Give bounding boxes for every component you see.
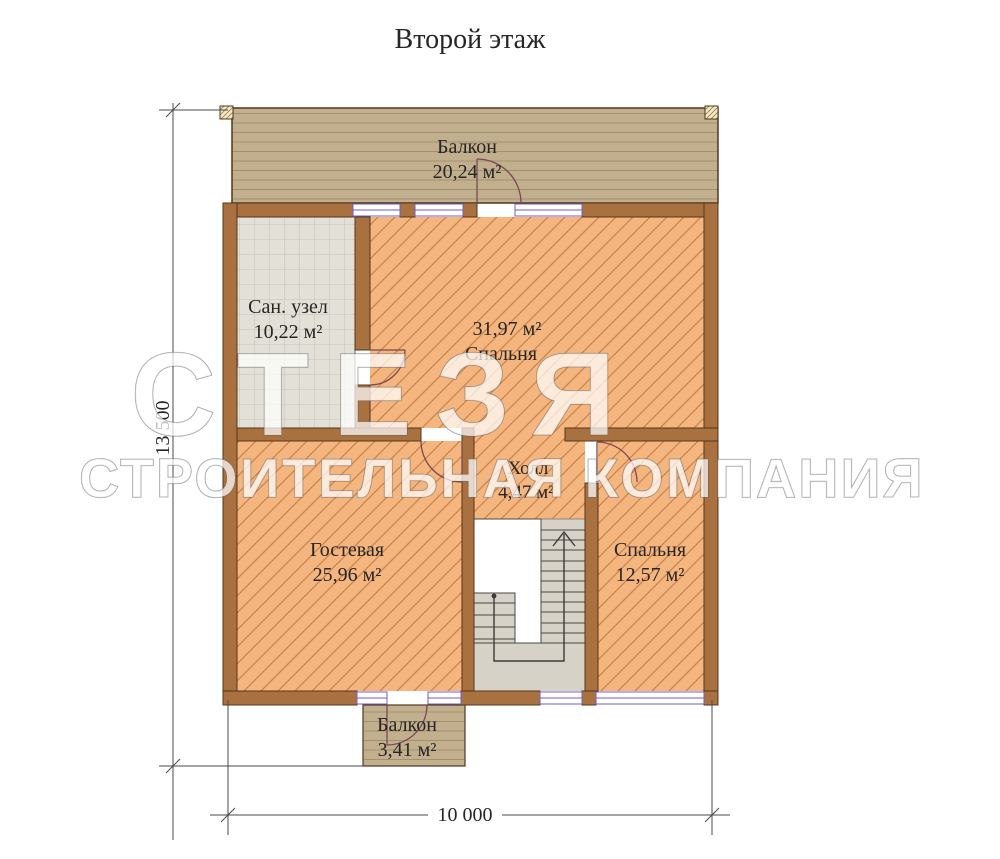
dim-width-label: 10 000 — [438, 804, 493, 826]
window-bottom-1 — [357, 692, 387, 704]
label-guest-area: 25,96 м² — [313, 564, 382, 586]
watermark-line1: СТЕЗЯ — [131, 329, 640, 461]
label-balcony-top-name: Балкон — [437, 136, 497, 158]
balcony-post-left — [220, 106, 233, 119]
watermark: СТЕЗЯ СТРОИТЕЛЬНАЯ КОМПАНИЯ — [79, 329, 925, 509]
label-san-uzel-name: Сан. узел — [248, 296, 328, 318]
watermark-line2: СТРОИТЕЛЬНАЯ КОМПАНИЯ — [79, 447, 925, 509]
label-balcony-bottom-area: 3,41 м² — [378, 739, 437, 761]
page-title: Второй этаж — [395, 24, 547, 55]
window-top-3 — [515, 204, 582, 216]
label-balcony-bottom-name: Балкон — [377, 714, 437, 736]
label-guest-name: Гостевая — [310, 539, 384, 561]
label-balcony-top-area: 20,24 м² — [433, 161, 502, 183]
window-top-2 — [415, 204, 463, 216]
window-top-1 — [353, 204, 400, 216]
label-bedroom-small-area: 12,57 м² — [616, 564, 685, 586]
balcony-post-right — [705, 106, 718, 119]
floor-plan-page: 13 500 10 000 Балкон 20,24 м² Сан. узел … — [0, 0, 1000, 859]
window-bottom-2 — [428, 692, 461, 704]
window-bottom-3 — [540, 692, 582, 704]
floor-plan-svg: 13 500 10 000 Балкон 20,24 м² Сан. узел … — [0, 0, 1000, 859]
dim-width-group: 10 000 — [428, 802, 502, 826]
label-bedroom-small-name: Спальня — [614, 539, 686, 561]
window-bottom-4 — [596, 692, 704, 704]
